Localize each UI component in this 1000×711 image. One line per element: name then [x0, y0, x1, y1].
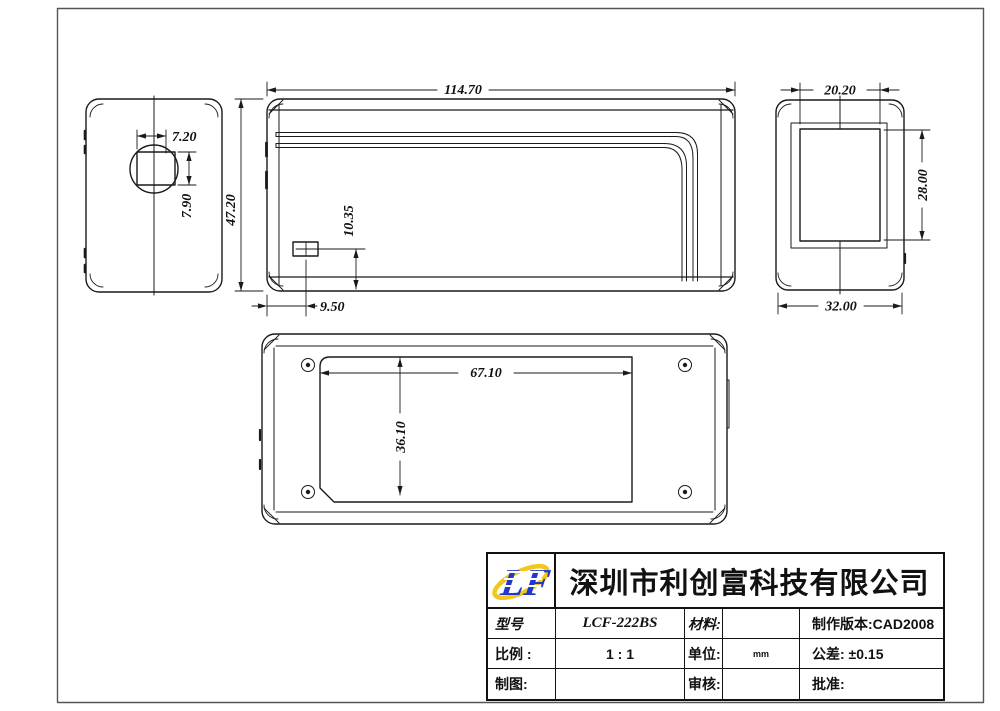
material-value — [723, 609, 800, 638]
title-block-row-model: 型号 LCF-222BS 材料: 制作版本:CAD2008 — [488, 609, 943, 639]
dim-pin-hole-width: 7.20 — [172, 130, 197, 145]
company-logo-icon: LF — [490, 557, 552, 605]
approved-label: 批准: — [800, 669, 943, 699]
company-name: 深圳市利创富科技有限公司 — [556, 554, 943, 607]
drawing-sheet: 114.70 47.20 7.20 7.90 10.35 9.50 20.20 … — [0, 0, 1000, 711]
checked-value — [723, 669, 800, 699]
title-block-row-sign: 制图: 审核: 批准: — [488, 669, 943, 699]
drawn-value — [556, 669, 685, 699]
tolerance-text: 公差: ±0.15 — [800, 639, 943, 668]
model-label: 型号 — [488, 609, 556, 638]
dim-front-width: 114.70 — [444, 83, 482, 98]
title-block-header: LF 深圳市利创富科技有限公司 — [488, 554, 943, 609]
dim-pin-hole-height: 7.90 — [180, 194, 195, 219]
checked-label: 审核: — [685, 669, 723, 699]
version-text: 制作版本:CAD2008 — [800, 609, 943, 638]
title-block: LF 深圳市利创富科技有限公司 型号 LCF-222BS 材料: 制作版本:CA… — [486, 552, 945, 701]
dim-side-width: 32.00 — [824, 300, 857, 315]
model-value: LCF-222BS — [556, 609, 685, 638]
title-block-row-scale: 比例 : 1 : 1 单位: mm 公差: ±0.15 — [488, 639, 943, 669]
dim-led-offset-y: 10.35 — [342, 205, 357, 237]
svg-text:LF: LF — [497, 562, 552, 604]
unit-value: mm — [723, 639, 800, 668]
recess-outer — [791, 123, 887, 248]
drawn-label: 制图: — [488, 669, 556, 699]
bottom-view — [260, 334, 729, 524]
recess-inner — [800, 129, 880, 241]
material-label: 材料: — [685, 609, 723, 638]
scale-value: 1 : 1 — [556, 639, 685, 668]
left-end-view — [85, 96, 222, 295]
groove-lines — [276, 133, 698, 282]
dim-recess-height: 28.00 — [916, 169, 931, 202]
dim-led-offset-x: 9.50 — [320, 300, 345, 315]
dim-front-height: 47.20 — [224, 194, 239, 227]
unit-label: 单位: — [685, 639, 723, 668]
scale-label: 比例 : — [488, 639, 556, 668]
dim-label-width: 67.10 — [470, 366, 502, 381]
dim-recess-width: 20.20 — [823, 84, 856, 99]
pin-hole-square — [137, 152, 175, 185]
right-end-view — [776, 96, 905, 294]
company-logo: LF — [488, 554, 556, 607]
front-view — [267, 99, 736, 291]
dim-label-height: 36.10 — [394, 421, 409, 454]
